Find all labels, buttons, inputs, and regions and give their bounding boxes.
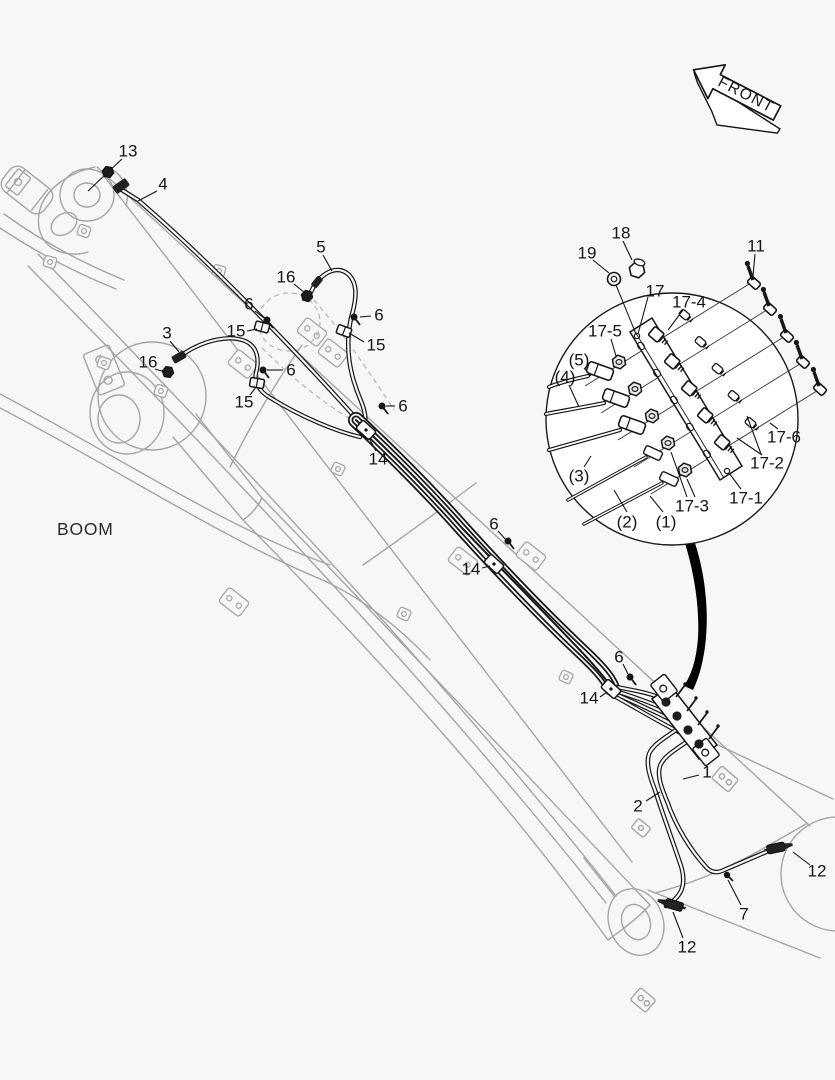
callout-label: 17 (646, 282, 665, 301)
callout-label: 17-3 (675, 497, 709, 516)
callout-18: 18 (612, 224, 632, 261)
boom-label: BOOM (57, 519, 114, 539)
callout-label: 17-6 (767, 428, 801, 447)
callout-label: 4 (158, 175, 167, 194)
callout-label: 18 (612, 224, 631, 243)
callout-6: 6 (489, 515, 506, 541)
callout-leader (673, 912, 683, 938)
callout-15: 15 (227, 322, 257, 341)
detail-callout-pointer (684, 537, 707, 690)
callout-6: 6 (386, 397, 408, 416)
callout-leader (623, 664, 628, 674)
callout-leader (323, 255, 332, 271)
callout-label: 15 (227, 322, 246, 341)
callout-label: (1) (656, 513, 677, 532)
callout-leader (623, 241, 632, 260)
callout-leader (349, 333, 364, 342)
callout-leader (360, 316, 371, 317)
callout-16: 16 (139, 353, 165, 373)
callout-label: 17-1 (729, 489, 763, 508)
callout-label: 7 (739, 905, 748, 924)
callout-label: 6 (398, 397, 407, 416)
callout-label: 6 (614, 648, 623, 667)
callout-17-6: 17-6 (767, 423, 801, 447)
callout-label: 16 (277, 268, 296, 287)
callout-label: 11 (747, 237, 765, 256)
callout-1: 1 (683, 763, 712, 782)
callout-leader (294, 284, 305, 293)
callout-15: 15 (235, 387, 256, 412)
callout-label: 6 (374, 306, 383, 325)
callout-4: 4 (138, 175, 168, 202)
callout-label: 12 (808, 862, 827, 881)
boom-structure (0, 162, 835, 1012)
callout-leader (600, 692, 607, 697)
callout-label: 2 (633, 797, 642, 816)
callout-14: 14 (580, 689, 607, 708)
callout-6: 6 (614, 648, 628, 675)
callout-6: 6 (360, 306, 384, 325)
callout-label: (3) (569, 467, 590, 486)
callout-leader (683, 775, 699, 779)
callout-leader (728, 880, 741, 905)
callout-label: 17-5 (588, 322, 622, 341)
callout-label: 14 (462, 560, 481, 579)
callout-leader (753, 254, 755, 276)
callout-label: 17-2 (750, 454, 784, 473)
callout-19: 19 (578, 244, 609, 274)
callout-label: 15 (367, 336, 386, 355)
callout-label: 13 (119, 142, 138, 161)
callout-label: 6 (244, 295, 253, 314)
callout-leader (138, 191, 157, 201)
callout-13: 13 (88, 142, 137, 192)
callout-label: 12 (678, 938, 697, 957)
callout-label: 19 (578, 244, 597, 263)
callout-label: 5 (316, 238, 325, 257)
callout-16: 16 (277, 268, 305, 294)
callout-5: 5 (316, 238, 332, 272)
callout-label: (4) (555, 368, 576, 387)
callout-label: 15 (235, 393, 254, 412)
callout-leader (170, 341, 179, 352)
callout-label: 16 (139, 353, 158, 372)
callout-label: 14 (369, 450, 388, 469)
callout-label: 1 (702, 763, 711, 782)
callout-label: 3 (162, 324, 171, 343)
callout-label: 6 (286, 361, 295, 380)
clamp-7 (724, 872, 733, 881)
callout-12: 12 (673, 912, 696, 957)
parts-diagram-page: FRONT BOOM 13451661561531661561461461412… (0, 0, 835, 1080)
boom-piping-diagram: FRONT BOOM 13451661561531661561461461412… (0, 0, 835, 1080)
callout-12: 12 (793, 852, 826, 881)
front-direction-arrow: FRONT (694, 65, 781, 133)
callout-label: 14 (580, 689, 599, 708)
callout-label: (2) (617, 513, 638, 532)
plug-18 (627, 257, 648, 279)
callout-7: 7 (728, 880, 749, 924)
callout-label: 6 (489, 515, 498, 534)
callout-label: 17-4 (672, 293, 706, 312)
